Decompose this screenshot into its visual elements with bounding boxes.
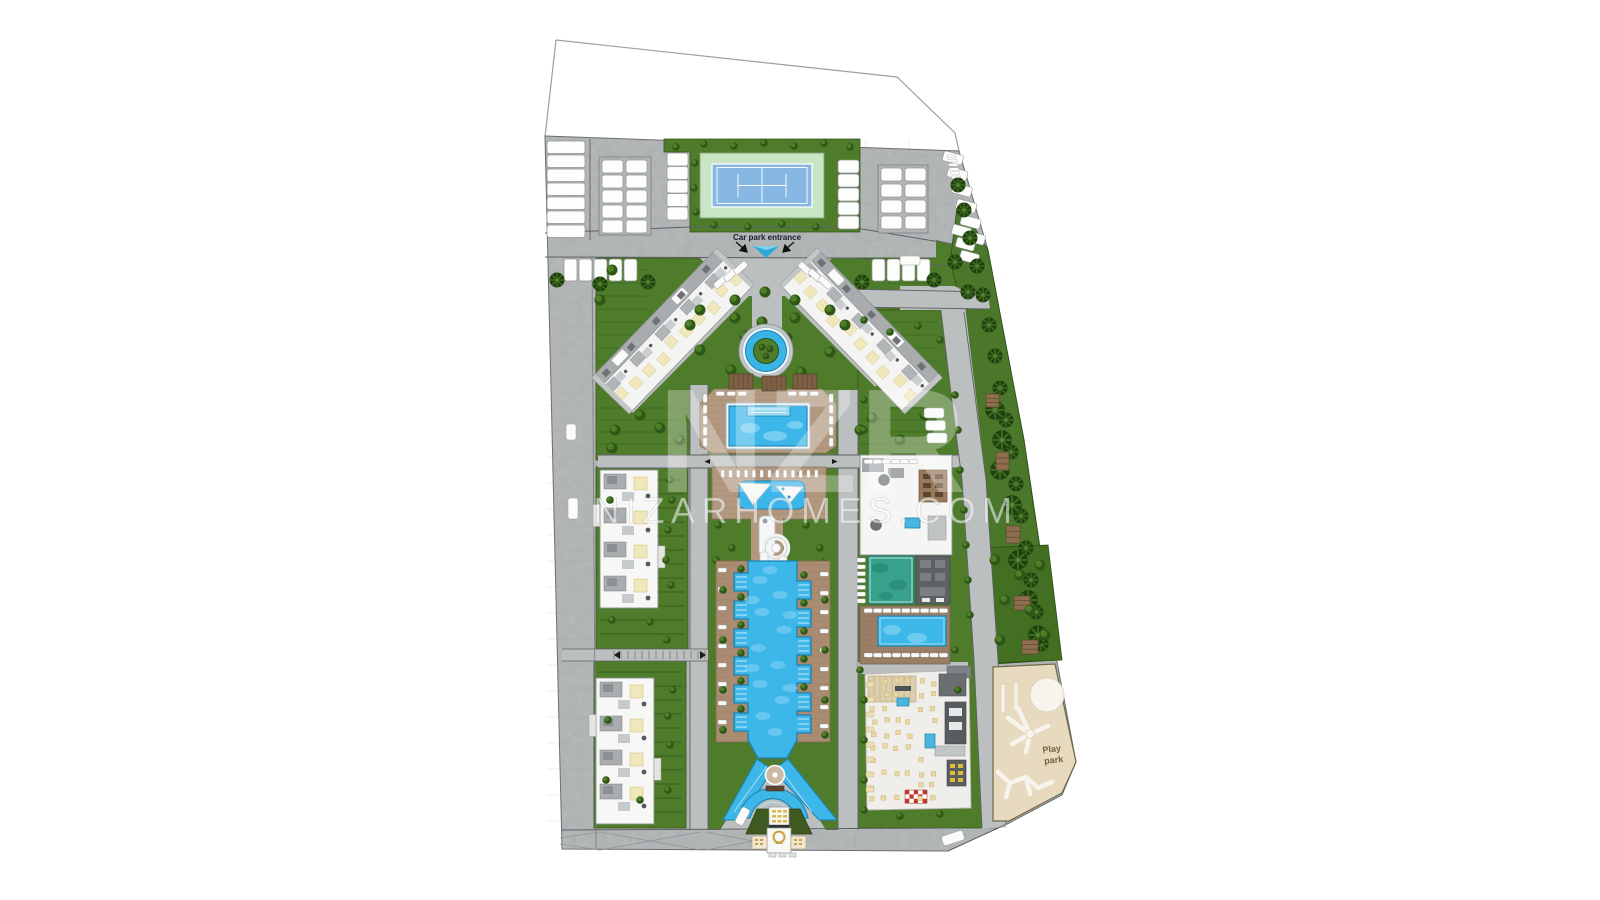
svg-text:Car park entrance: Car park entrance <box>733 233 802 242</box>
svg-text:Play: Play <box>1042 743 1061 755</box>
svg-text:NIZARHOMES.COM: NIZARHOMES.COM <box>593 490 1018 531</box>
svg-text:park: park <box>1044 754 1065 766</box>
